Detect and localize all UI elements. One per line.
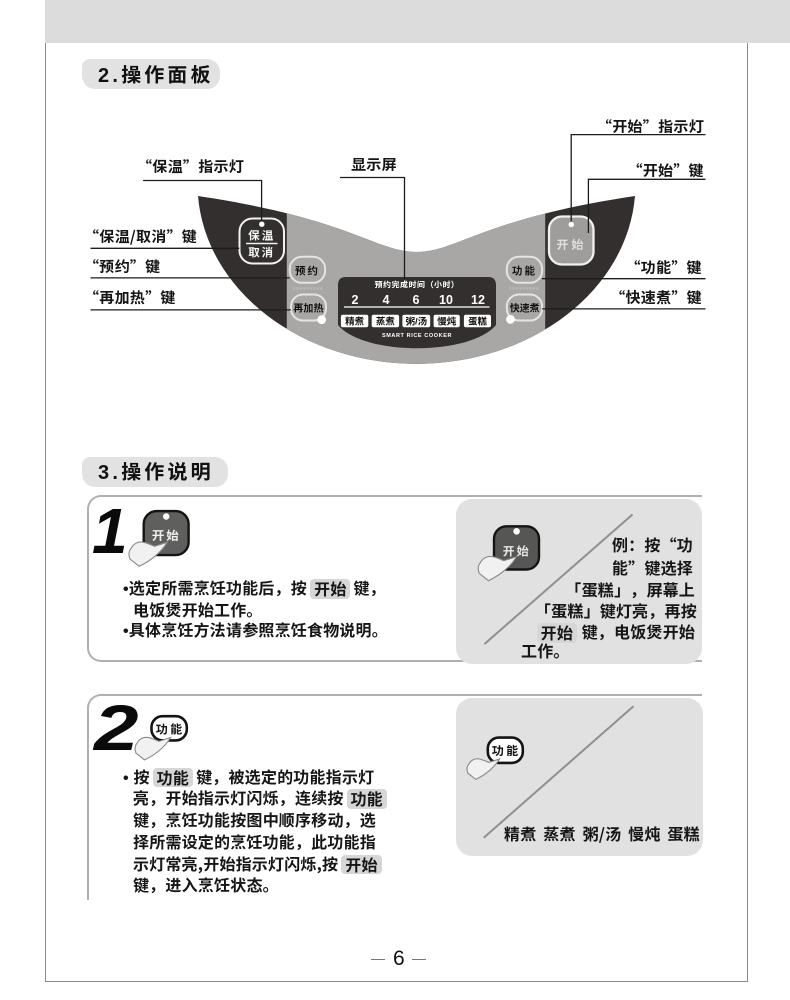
svg-text:2: 2 [352, 293, 359, 307]
svg-text:10: 10 [439, 293, 453, 307]
svg-text:蛋糕: 蛋糕 [467, 316, 488, 328]
svg-text:6: 6 [413, 293, 420, 307]
svg-text:预约完成时间（小时）: 预约完成时间（小时） [374, 280, 460, 290]
svg-text:蒸煮: 蒸煮 [376, 316, 396, 328]
svg-text:保温: 保温 [248, 230, 275, 243]
svg-text:慢炖: 慢炖 [436, 317, 457, 328]
svg-text:SMART RICE COOKER: SMART RICE COOKER [382, 333, 452, 339]
svg-text:快速煮: 快速煮 [510, 303, 540, 315]
svg-text:4: 4 [383, 293, 390, 307]
svg-text:精煮: 精煮 [345, 316, 365, 328]
svg-text:12: 12 [471, 293, 485, 307]
svg-text:开始: 开始 [152, 528, 181, 543]
svg-text:粥/汤: 粥/汤 [405, 316, 427, 328]
svg-text:再加热: 再加热 [294, 304, 324, 315]
svg-text:功能: 功能 [512, 265, 537, 278]
svg-text:取消: 取消 [248, 247, 275, 260]
svg-text:功能: 功能 [156, 722, 185, 736]
svg-text:功能: 功能 [492, 744, 521, 758]
svg-text:预约: 预约 [295, 265, 320, 278]
svg-text:开始: 开始 [556, 238, 586, 252]
